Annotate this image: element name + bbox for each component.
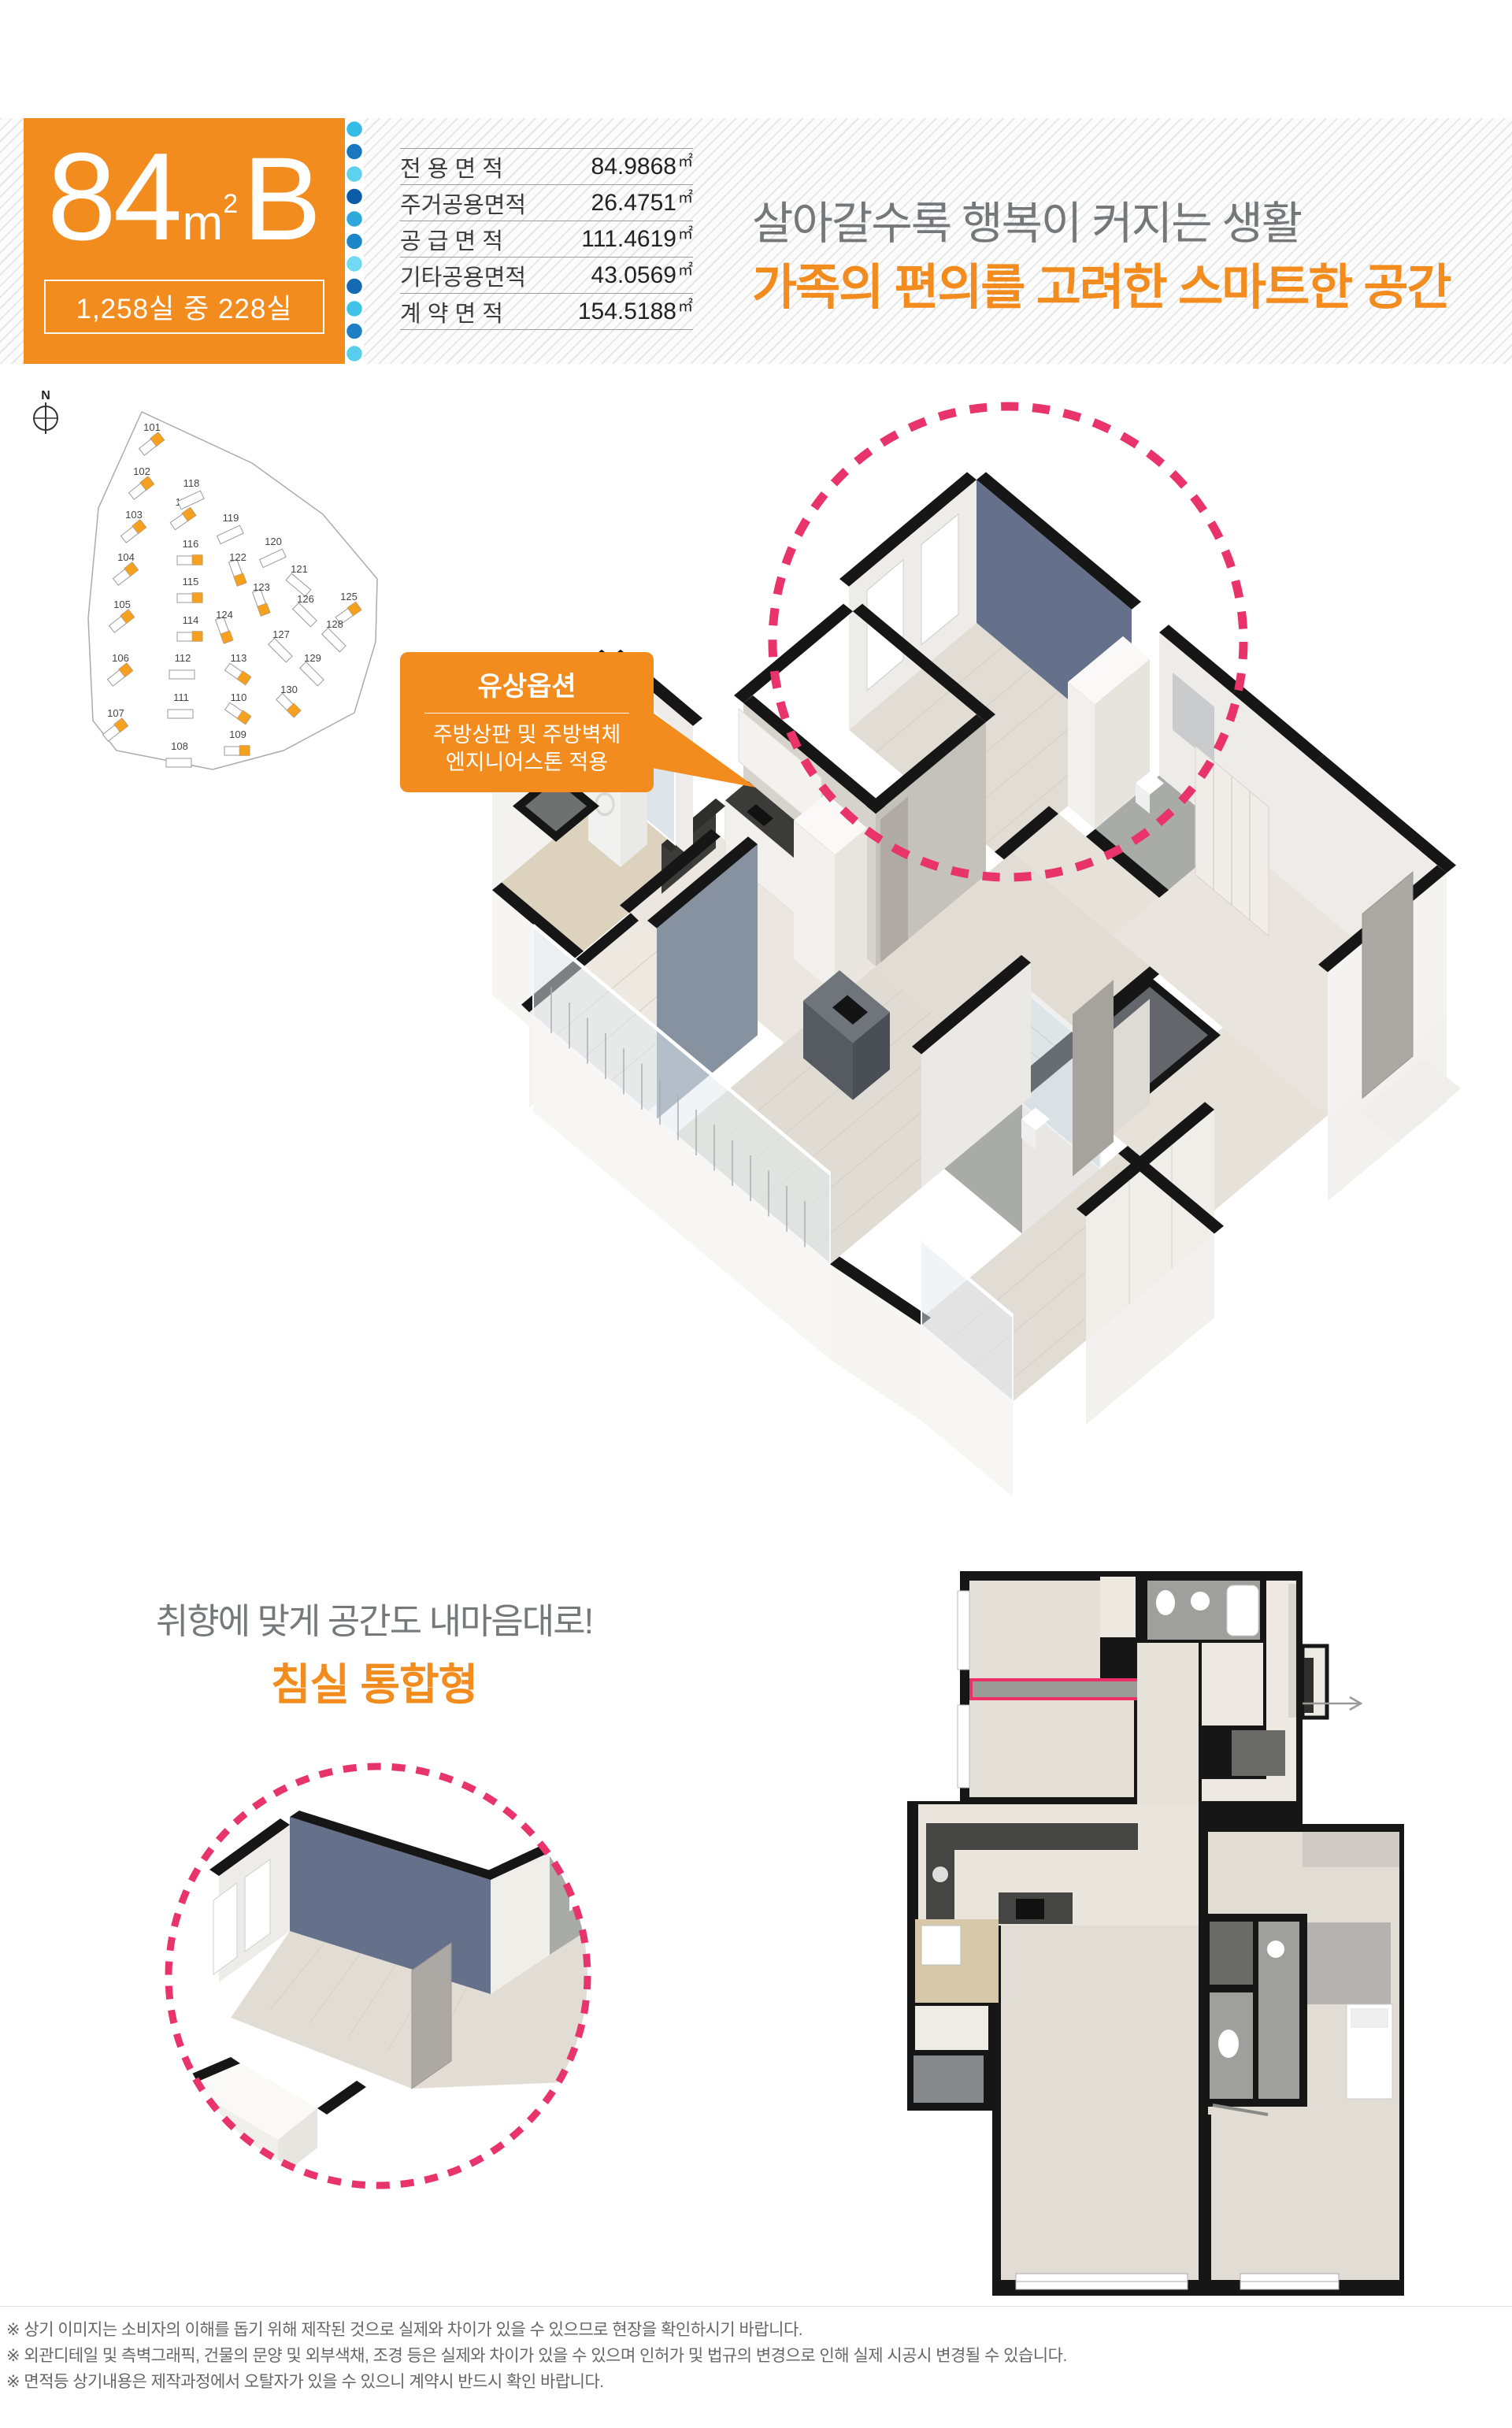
area-label: 공 급 면 적 <box>400 223 554 256</box>
wave-pattern <box>345 118 364 364</box>
planter-2d <box>911 2053 986 2105</box>
site-building-105: 105 <box>109 599 135 633</box>
site-building-108: 108 <box>166 740 191 767</box>
removable-wall-2d <box>973 1681 1142 1697</box>
site-building-112: 112 <box>169 652 195 679</box>
svg-text:123: 123 <box>253 581 270 593</box>
compass-icon: N <box>34 389 57 434</box>
svg-text:111: 111 <box>173 691 189 703</box>
highlight-circle-main <box>764 398 1252 886</box>
flyer-page: 84 m 2 B 1,258실 중 228실 전 용 면 적84.9868㎡주거… <box>0 0 1512 2428</box>
closet-2d <box>1100 1577 1136 1637</box>
svg-text:113: 113 <box>231 652 247 664</box>
area-label: 주거공용면적 <box>400 187 554 220</box>
svg-text:108: 108 <box>171 740 188 752</box>
area-value: 84.9868 <box>554 154 676 180</box>
option-section-subtitle: 침실 통합형 <box>102 1649 646 1712</box>
svg-text:118: 118 <box>183 477 200 489</box>
callout-divider <box>424 713 629 714</box>
svg-text:130: 130 <box>280 684 298 695</box>
area-table-row: 공 급 면 적111.4619㎡ <box>400 221 693 257</box>
svg-text:129: 129 <box>304 652 321 664</box>
headline-gray: 살아갈수록 행복이 커지는 생활 <box>752 187 1301 252</box>
area-table-row: 기타공용면적43.0569㎡ <box>400 257 693 293</box>
svg-text:120: 120 <box>265 536 282 547</box>
svg-text:126: 126 <box>297 593 314 605</box>
area-unit: ㎡ <box>678 222 693 243</box>
site-building-128: 128 <box>322 618 346 652</box>
area-value: 111.4619 <box>554 226 676 253</box>
svg-text:119: 119 <box>223 512 239 524</box>
site-building-109: 109 <box>224 728 250 756</box>
unit-type-letter: B <box>243 139 321 258</box>
site-boundary <box>88 412 377 769</box>
area-unit: ㎡ <box>678 295 693 316</box>
floorplan-2d <box>898 1563 1449 2308</box>
svg-text:101: 101 <box>143 421 161 433</box>
unit-availability-badge: 1,258실 중 228실 <box>44 280 324 334</box>
site-building-114: 114 <box>177 614 202 642</box>
area-value: 43.0569 <box>554 262 676 289</box>
site-building-104: 104 <box>113 551 139 586</box>
site-building-106: 106 <box>107 652 133 687</box>
svg-text:110: 110 <box>231 691 247 703</box>
unit-area-exponent: 2 <box>223 191 238 217</box>
bedroom2-2d <box>969 1699 1134 1797</box>
svg-text:114: 114 <box>183 614 199 626</box>
svg-text:105: 105 <box>113 599 131 610</box>
site-building-121: 121 <box>286 563 311 596</box>
site-building-107: 107 <box>102 707 128 742</box>
site-building-127: 127 <box>269 628 292 662</box>
storage-2d <box>1232 1730 1285 1776</box>
unit-area-number: 84 <box>47 135 180 259</box>
area-value: 26.4751 <box>554 190 676 217</box>
balcony-windows-2d <box>1016 2274 1339 2289</box>
svg-text:104: 104 <box>117 551 135 563</box>
svg-text:103: 103 <box>125 509 143 521</box>
living-2d <box>1001 1926 1199 2280</box>
svg-text:102: 102 <box>133 465 150 477</box>
site-building-115: 115 <box>177 576 202 603</box>
bed3-door-panel <box>1073 980 1114 1177</box>
site-building-101: 101 <box>139 421 165 456</box>
option-section-title: 취향에 맞게 공간도 내마음대로! <box>102 1592 646 1644</box>
footer-divider <box>0 2306 1512 2307</box>
disclaimer-line: ※ 상기 이미지는 소비자의 이해를 돕기 위해 제작된 것으로 실제와 차이가… <box>6 2317 1067 2343</box>
area-table-row: 전 용 면 적84.9868㎡ <box>400 148 693 184</box>
area-value: 154.5188 <box>554 298 676 325</box>
area-table: 전 용 면 적84.9868㎡주거공용면적26.4751㎡공 급 면 적111.… <box>400 148 693 330</box>
svg-text:N: N <box>41 389 50 402</box>
area-unit: ㎡ <box>678 258 693 280</box>
svg-text:107: 107 <box>107 707 124 719</box>
disclaimer-line: ※ 외관디테일 및 측벽그래픽, 건물의 문양 및 외부색채, 조경 등은 실제… <box>6 2343 1067 2369</box>
site-building-116: 116 <box>177 538 202 565</box>
site-building-118: 118 <box>177 477 204 510</box>
site-building-124: 124 <box>215 609 233 643</box>
unit-type-box: 84 m 2 B 1,258실 중 228실 <box>24 118 345 364</box>
site-building-122: 122 <box>228 551 246 586</box>
svg-text:115: 115 <box>183 576 199 588</box>
site-building-123: 123 <box>252 581 270 616</box>
svg-text:125: 125 <box>340 591 358 602</box>
site-building-119: 119 <box>217 512 243 544</box>
svg-text:106: 106 <box>112 652 129 664</box>
svg-text:109: 109 <box>229 728 246 740</box>
site-building-103: 103 <box>120 509 146 543</box>
callout-title: 유상옵션 <box>400 665 654 703</box>
svg-text:128: 128 <box>326 618 343 630</box>
callout-body-line1: 주방상판 및 주방벽체 <box>400 721 654 749</box>
svg-text:121: 121 <box>291 563 308 575</box>
area-label: 기타공용면적 <box>400 259 554 292</box>
callout-pointer <box>647 699 765 798</box>
paid-option-callout: 유상옵션 주방상판 및 주방벽체 엔지니어스톤 적용 <box>400 652 654 792</box>
svg-text:124: 124 <box>216 609 233 621</box>
site-plan-map: N 10110210310410510610710810911011111211… <box>24 382 378 791</box>
area-unit: ㎡ <box>678 150 693 171</box>
area-label: 전 용 면 적 <box>400 150 554 183</box>
unit-area-unit: m <box>183 199 224 248</box>
area-unit: ㎡ <box>678 186 693 207</box>
site-building-130: 130 <box>276 684 301 717</box>
area-table-row: 계 약 면 적154.5188㎡ <box>400 293 693 329</box>
disclaimer-notes: ※ 상기 이미지는 소비자의 이해를 돕기 위해 제작된 것으로 실제와 차이가… <box>6 2317 1067 2395</box>
bedroom1-2d <box>969 1581 1100 1680</box>
svg-text:116: 116 <box>183 538 199 550</box>
disclaimer-line: ※ 면적등 상기내용은 제작과정에서 오탈자가 있을 수 있으니 계약시 반드시… <box>6 2369 1067 2395</box>
window-2d <box>958 1591 969 1670</box>
callout-body-line2: 엔지니어스톤 적용 <box>400 749 654 777</box>
site-building-111: 111 <box>168 691 193 718</box>
site-building-126: 126 <box>293 593 317 627</box>
site-building-129: 129 <box>300 652 324 686</box>
svg-text:112: 112 <box>175 652 191 664</box>
site-building-102: 102 <box>128 465 154 500</box>
site-buildings: 1011021031041051061071081091101111121131… <box>102 421 361 767</box>
svg-text:127: 127 <box>272 628 290 640</box>
site-building-110: 110 <box>224 691 251 725</box>
wave-pattern-strip <box>345 118 364 364</box>
window-2d <box>958 1705 969 1788</box>
area-table-row: 주거공용면적26.4751㎡ <box>400 184 693 221</box>
site-building-113: 113 <box>224 652 251 685</box>
area-label: 계 약 면 적 <box>400 295 554 328</box>
unit-type-title: 84 m 2 B <box>47 135 321 259</box>
svg-text:122: 122 <box>229 551 246 563</box>
site-building-120: 120 <box>259 536 286 568</box>
headline-orange: 가족의 편의를 고려한 스마트한 공간 <box>752 247 1451 318</box>
merged-bedroom-3d-render <box>152 1750 605 2203</box>
